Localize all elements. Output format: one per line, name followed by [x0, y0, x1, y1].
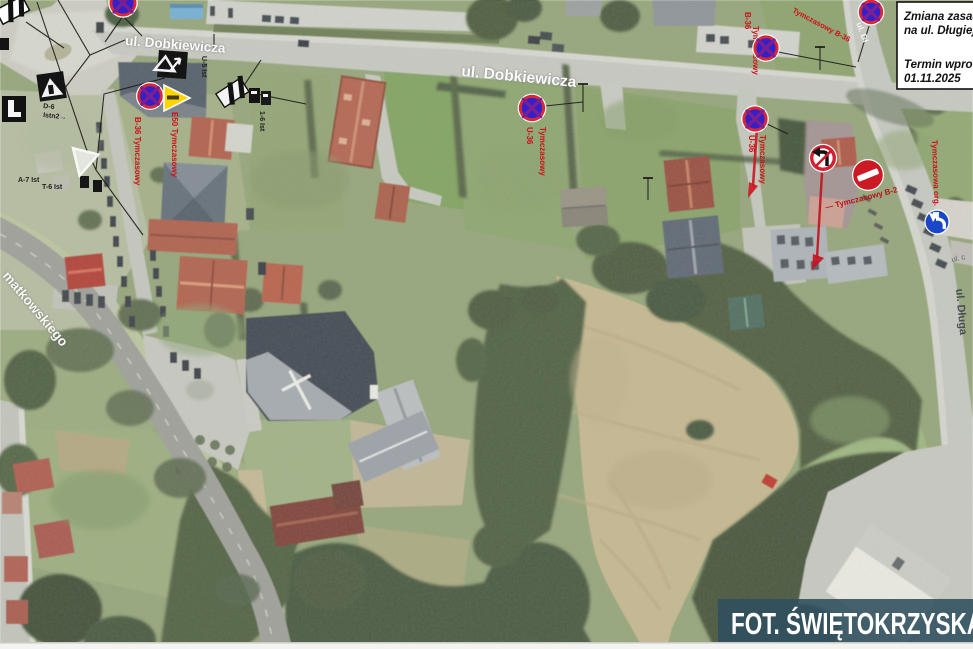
svg-text:Tymczasowy: Tymczasowy	[538, 127, 547, 176]
svg-text:D-6: D-6	[43, 103, 55, 111]
svg-text:1-6 Ist: 1-6 Ist	[258, 111, 265, 132]
svg-text:B-36: B-36	[743, 12, 752, 30]
svg-text:E50 Tymczasowy: E50 Tymczasowy	[170, 112, 179, 178]
svg-text:U-36: U-36	[747, 135, 756, 153]
svg-text:T-6 Ist: T-6 Ist	[42, 184, 63, 191]
svg-text:Zmiana zasad: Zmiana zasad	[903, 11, 973, 23]
svg-text:U-5 Ist: U-5 Ist	[200, 56, 207, 78]
svg-text:B-36 Tymczasowy: B-36 Tymczasowy	[133, 117, 142, 186]
svg-text:U-36: U-36	[525, 127, 534, 145]
svg-text:A-7 Ist: A-7 Ist	[18, 177, 40, 184]
svg-text:FOT. ŚWIĘTOKRZYSKA: FOT. ŚWIĘTOKRZYSKA	[731, 605, 973, 641]
svg-text:na ul. Długiej i: na ul. Długiej i	[904, 25, 973, 37]
svg-text:Termin wprow: Termin wprow	[904, 59, 973, 71]
svg-text:Tymczasowy: Tymczasowy	[758, 135, 767, 184]
svg-text:01.11.2025: 01.11.2025	[904, 73, 961, 85]
